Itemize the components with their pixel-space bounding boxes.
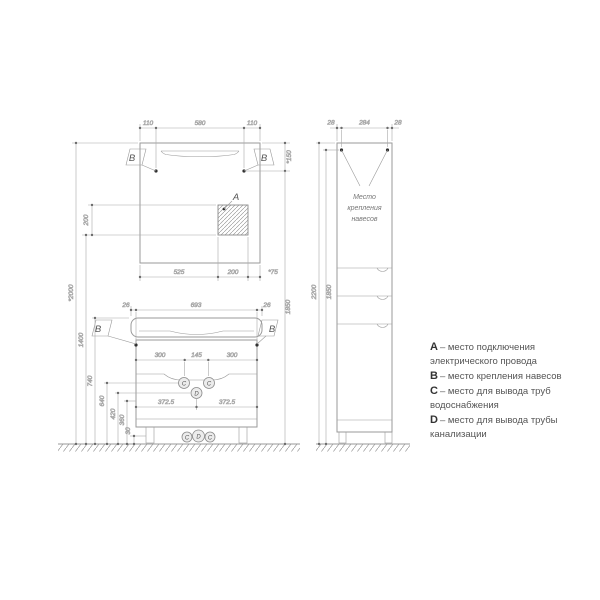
vanity-marker-b-left: B xyxy=(95,324,102,335)
svg-text:372.5: 372.5 xyxy=(158,399,175,406)
svg-text:300: 300 xyxy=(227,352,238,359)
svg-text:*75: *75 xyxy=(268,269,278,276)
mirror-marker-a: A xyxy=(232,192,239,203)
svg-text:26: 26 xyxy=(121,302,130,309)
svg-text:360: 360 xyxy=(119,414,126,425)
svg-text:26: 26 xyxy=(262,302,271,309)
mirror-mount-markers: B B xyxy=(126,149,274,173)
legend-text-b: – место крепления навесов xyxy=(440,371,562,382)
svg-text:1850: 1850 xyxy=(326,284,333,299)
technical-drawing-canvas: B B A 110 580 110 *150 1850 200 xyxy=(0,0,600,600)
column-mount-note: Место крепления навесов xyxy=(340,148,389,223)
svg-text:110: 110 xyxy=(143,120,154,127)
svg-text:1400: 1400 xyxy=(78,332,85,347)
svg-text:навесов: навесов xyxy=(351,216,377,223)
mirror-lamp xyxy=(161,151,239,157)
electrical-area-a: A xyxy=(218,192,248,235)
svg-text:крепления: крепления xyxy=(347,205,382,212)
legend-key-d: D xyxy=(430,414,438,426)
outlet-square-dimension: 200 xyxy=(82,204,216,236)
svg-text:200: 200 xyxy=(227,269,239,276)
svg-text:D: D xyxy=(196,435,201,441)
svg-text:*2000: *2000 xyxy=(68,284,75,301)
svg-text:C: C xyxy=(208,436,213,442)
svg-text:300: 300 xyxy=(155,352,166,359)
mirror-marker-b-left: B xyxy=(129,153,136,164)
column-cabinet-outline xyxy=(337,143,392,443)
svg-text:D: D xyxy=(194,392,199,398)
column-height-dimensions: 2200 1850 xyxy=(311,142,339,445)
water-supply-points: C C D xyxy=(179,378,215,399)
legend-key-b: B xyxy=(430,370,438,382)
svg-text:C: C xyxy=(185,436,190,442)
svg-text:284: 284 xyxy=(358,120,370,127)
svg-text:*150: *150 xyxy=(286,150,293,164)
svg-text:693: 693 xyxy=(191,302,202,309)
ground-right xyxy=(316,444,410,452)
legend-item-b: B– место крепления навесов xyxy=(430,369,584,384)
svg-text:525: 525 xyxy=(174,269,185,276)
svg-text:110: 110 xyxy=(247,120,258,127)
svg-text:200: 200 xyxy=(83,214,90,226)
floor-pipe-points: C C D xyxy=(182,430,215,442)
svg-text:C: C xyxy=(182,382,187,388)
svg-text:Место: Место xyxy=(353,194,376,201)
mirror-top-dimension: 110 580 110 xyxy=(139,120,261,168)
svg-text:30: 30 xyxy=(125,427,132,435)
legend-text-c: – место для вывода труб водоснабжения xyxy=(430,386,551,411)
mirror-right-dimension: *150 xyxy=(246,142,293,172)
svg-text:372.5: 372.5 xyxy=(219,399,236,406)
furniture-installation-drawing: B B A 110 580 110 *150 1850 200 xyxy=(0,0,600,600)
svg-text:28: 28 xyxy=(326,120,335,127)
mirror-bottom-dimension: 525 200 *75 xyxy=(139,237,278,281)
vanity-half-dimension: 372.5 372.5 xyxy=(135,399,258,410)
mirror-marker-b-right: B xyxy=(261,153,268,164)
legend-item-a: A– место подключения электрического пров… xyxy=(430,340,584,369)
legend-key-c: C xyxy=(430,385,438,397)
mirror-outline xyxy=(140,143,260,263)
outlet-height-dimension: 1400 xyxy=(78,234,87,445)
legend-text-d: – место для вывода трубы канализации xyxy=(430,415,558,440)
ground-left xyxy=(58,444,300,452)
legend-item-d: D– место для вывода трубы канализации xyxy=(430,413,584,442)
svg-text:145: 145 xyxy=(191,352,202,359)
legend-text-a: – место подключения электрического прово… xyxy=(430,342,537,367)
washbasin-outline xyxy=(131,318,262,337)
svg-text:640: 640 xyxy=(99,395,106,406)
svg-text:C: C xyxy=(207,382,212,388)
vanity-marker-b-right: B xyxy=(269,324,276,335)
hanger-height-dimension: 1850 xyxy=(284,171,292,445)
legend-key-a: A xyxy=(430,341,438,353)
legend-item-c: C– место для вывода труб водоснабжения xyxy=(430,384,584,413)
legend: A– место подключения электрического пров… xyxy=(430,340,584,442)
vanity-inner-dimension: 300 145 300 xyxy=(135,352,258,376)
svg-text:420: 420 xyxy=(110,408,117,419)
svg-text:2200: 2200 xyxy=(311,284,318,300)
svg-text:1850: 1850 xyxy=(285,299,292,314)
svg-text:580: 580 xyxy=(195,120,206,127)
vanity-mount-markers: B B xyxy=(92,320,278,347)
svg-text:740: 740 xyxy=(87,375,94,386)
svg-text:28: 28 xyxy=(393,120,402,127)
